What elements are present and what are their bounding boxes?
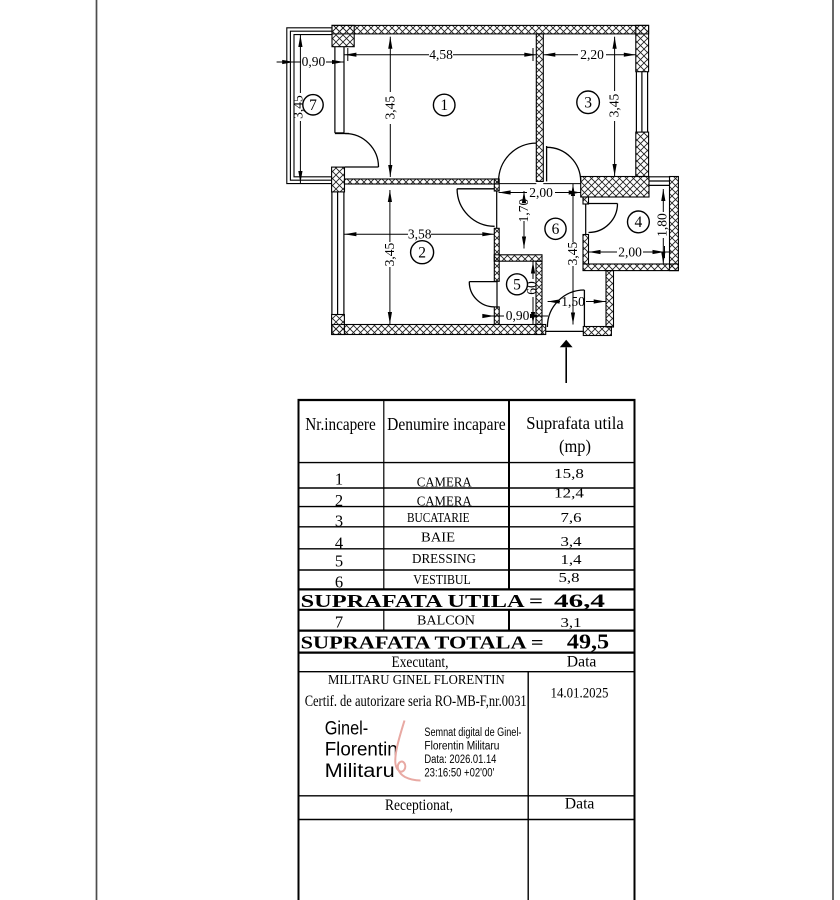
svg-text:BALCON: BALCON	[417, 613, 475, 628]
svg-text:1,50: 1,50	[561, 294, 585, 309]
svg-text:DRESSING: DRESSING	[412, 551, 476, 566]
svg-text:CAMERA: CAMERA	[417, 494, 472, 509]
svg-text:4: 4	[335, 533, 343, 552]
svg-text:3,45: 3,45	[606, 93, 621, 117]
svg-text:Florentin Militaru: Florentin Militaru	[424, 741, 499, 753]
svg-text:3,45: 3,45	[382, 96, 397, 120]
svg-text:4,58: 4,58	[429, 47, 453, 62]
svg-text:Denumire incapare: Denumire incapare	[387, 414, 506, 434]
svg-text:1,80: 1,80	[655, 213, 670, 237]
svg-text:Ginel-: Ginel-	[325, 719, 369, 740]
svg-text:49,5: 49,5	[567, 629, 609, 653]
svg-text:2: 2	[418, 244, 426, 261]
svg-text:3,45: 3,45	[382, 242, 397, 266]
svg-text:23:16:50 +02'00': 23:16:50 +02'00'	[424, 768, 494, 780]
svg-text:4: 4	[635, 214, 643, 231]
svg-text:3,45: 3,45	[565, 241, 580, 265]
svg-text:Suprafata utila: Suprafata utila	[526, 413, 624, 433]
svg-text:(mp): (mp)	[559, 436, 591, 457]
svg-text:Florentin: Florentin	[325, 740, 398, 761]
svg-text:2,00: 2,00	[529, 185, 553, 200]
svg-text:5,8: 5,8	[559, 571, 580, 586]
svg-text:6: 6	[552, 221, 560, 238]
svg-text:CAMERA: CAMERA	[417, 475, 472, 490]
svg-text:3: 3	[584, 95, 592, 112]
svg-text:12,4: 12,4	[554, 486, 584, 501]
svg-text:14.01.2025: 14.01.2025	[551, 685, 609, 701]
svg-text:6: 6	[335, 573, 343, 592]
svg-text:SUPRAFATA UTILA: SUPRAFATA UTILA	[301, 591, 525, 611]
svg-text:7: 7	[309, 97, 317, 114]
svg-text:3,58: 3,58	[408, 227, 432, 242]
svg-text:Data: 2026.01.14: Data: 2026.01.14	[424, 754, 496, 766]
svg-text:1,4: 1,4	[561, 553, 582, 568]
svg-text:VESTIBUL: VESTIBUL	[413, 572, 471, 587]
svg-text:Data: Data	[567, 654, 597, 671]
svg-text:BUCATARIE: BUCATARIE	[407, 510, 470, 525]
svg-text:2: 2	[335, 491, 343, 510]
svg-text:2,00: 2,00	[618, 245, 642, 260]
svg-text:7: 7	[335, 613, 343, 632]
svg-text:Executant,: Executant,	[392, 654, 449, 671]
svg-text:3: 3	[335, 512, 343, 531]
svg-text:3,4: 3,4	[561, 535, 582, 550]
svg-text:SUPRAFATA TOTALA =: SUPRAFATA TOTALA =	[301, 632, 544, 652]
svg-text:MILITARU GINEL FLORENTIN: MILITARU GINEL FLORENTIN	[328, 673, 505, 688]
svg-text:1: 1	[440, 97, 448, 114]
svg-text:2,20: 2,20	[580, 47, 604, 62]
svg-text:=: =	[529, 591, 543, 611]
svg-text:Nr.incapere: Nr.incapere	[305, 414, 376, 434]
svg-text:0,90: 0,90	[506, 308, 530, 323]
svg-text:1: 1	[335, 470, 343, 489]
svg-text:1,70: 1,70	[516, 198, 531, 222]
svg-text:Data: Data	[565, 796, 595, 813]
svg-text:Certif. de autorizare seria RO: Certif. de autorizare seria RO-MB-F,nr.0…	[305, 693, 527, 710]
svg-text:5: 5	[335, 552, 343, 571]
svg-text:15,8: 15,8	[554, 467, 584, 482]
svg-text:7,6: 7,6	[561, 511, 582, 526]
svg-text:5: 5	[513, 277, 521, 294]
svg-text:Militaru: Militaru	[325, 761, 395, 782]
svg-text:BAIE: BAIE	[421, 530, 455, 545]
svg-text:46,4: 46,4	[554, 591, 606, 612]
svg-text:Receptionat,: Receptionat,	[385, 797, 453, 814]
svg-text:Semnat digital de Ginel-: Semnat digital de Ginel-	[424, 727, 521, 739]
svg-text:0,90: 0,90	[302, 54, 326, 69]
